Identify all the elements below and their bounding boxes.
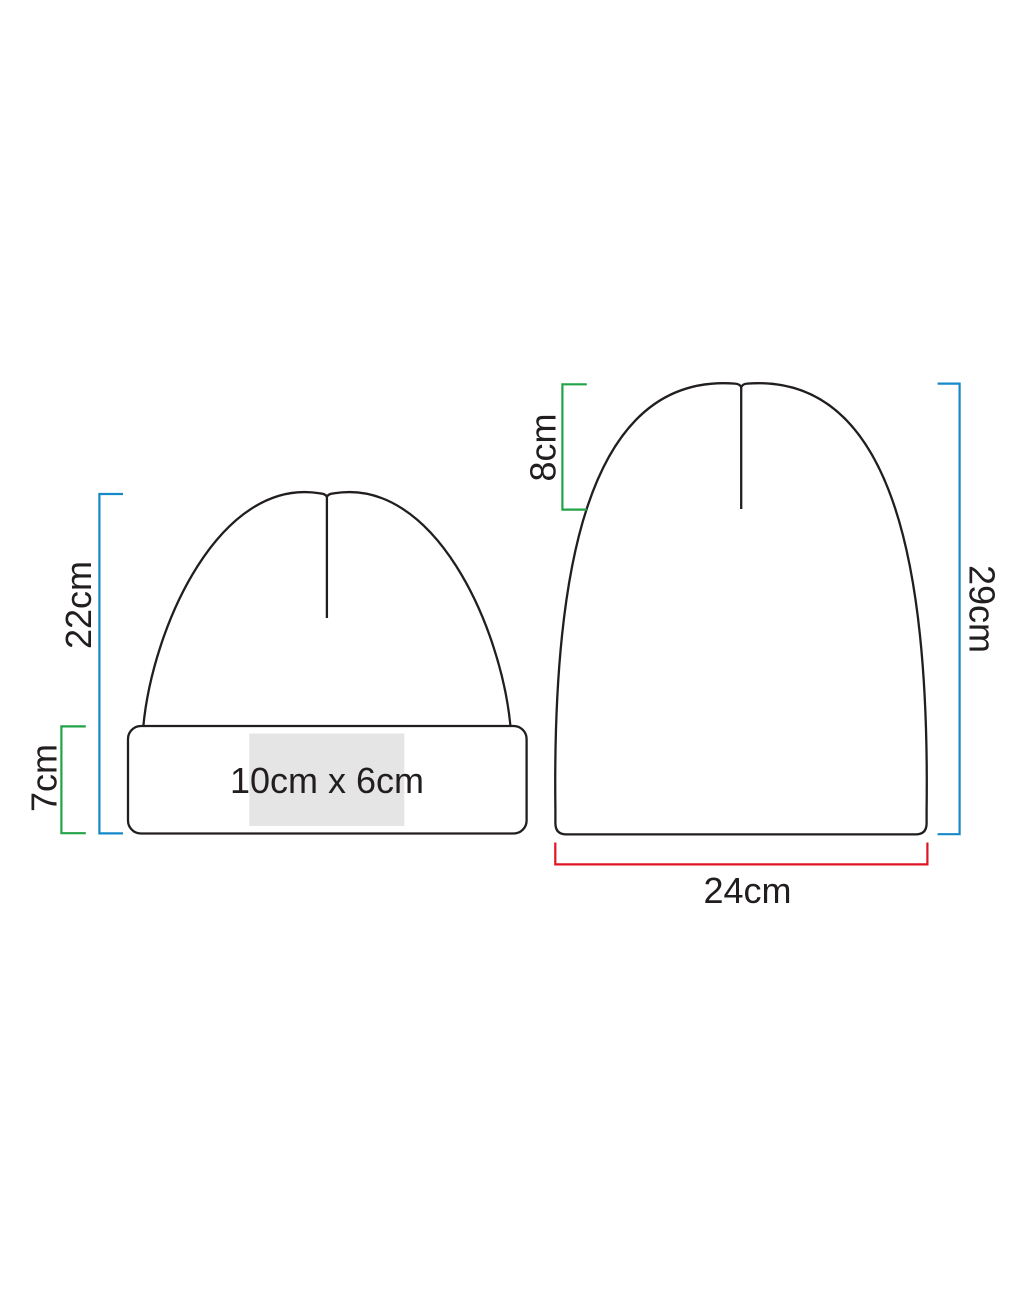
svg-text:29cm: 29cm <box>962 565 1003 653</box>
svg-text:8cm: 8cm <box>523 413 564 481</box>
svg-text:24cm: 24cm <box>703 870 791 911</box>
svg-text:22cm: 22cm <box>58 561 99 649</box>
svg-text:10cm x 6cm: 10cm x 6cm <box>230 760 424 801</box>
svg-text:7cm: 7cm <box>24 744 65 812</box>
